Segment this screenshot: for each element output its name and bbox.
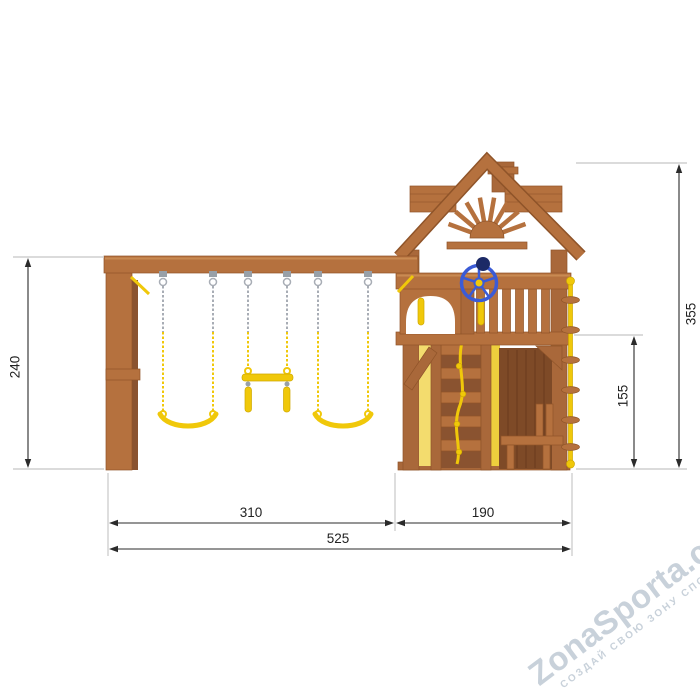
swing-right <box>315 286 371 426</box>
dimension-355: 355 <box>576 163 699 469</box>
dim-label-190: 190 <box>472 505 495 520</box>
swings <box>159 271 372 426</box>
dimension-155: 155 <box>574 335 643 468</box>
trapeze-handle-left <box>245 387 252 412</box>
swing-seat-right <box>315 414 371 426</box>
swing-left <box>160 286 216 426</box>
dim-label-525: 525 <box>327 531 350 546</box>
climbing-wall <box>429 332 493 470</box>
dimension-190: 190 <box>396 505 571 526</box>
trapeze-handle-right <box>284 387 291 412</box>
grab-handle-left <box>418 298 424 325</box>
playhouse-tower <box>396 250 580 470</box>
swing-frame <box>104 256 418 470</box>
swing-seat-left <box>160 414 216 426</box>
arch-window <box>400 288 461 334</box>
dim-label-355: 355 <box>684 303 699 326</box>
dim-label-310: 310 <box>240 505 263 520</box>
trapeze-bar <box>242 374 293 381</box>
left-post <box>106 257 132 470</box>
playground-dimension-drawing: 240 355 155 310 190 5 <box>0 0 700 700</box>
left-post-crossbar <box>106 369 140 380</box>
dim-label-155: 155 <box>616 385 631 408</box>
dim-label-240: 240 <box>8 356 23 379</box>
trapeze <box>242 286 293 412</box>
dimension-310: 310 <box>109 505 394 526</box>
dimension-525: 525 <box>109 531 571 552</box>
drawing-canvas: 240 355 155 310 190 5 <box>0 0 700 700</box>
slide-side-right <box>491 344 500 466</box>
playhouse-roof <box>399 161 581 257</box>
dimension-240: 240 <box>8 257 104 469</box>
